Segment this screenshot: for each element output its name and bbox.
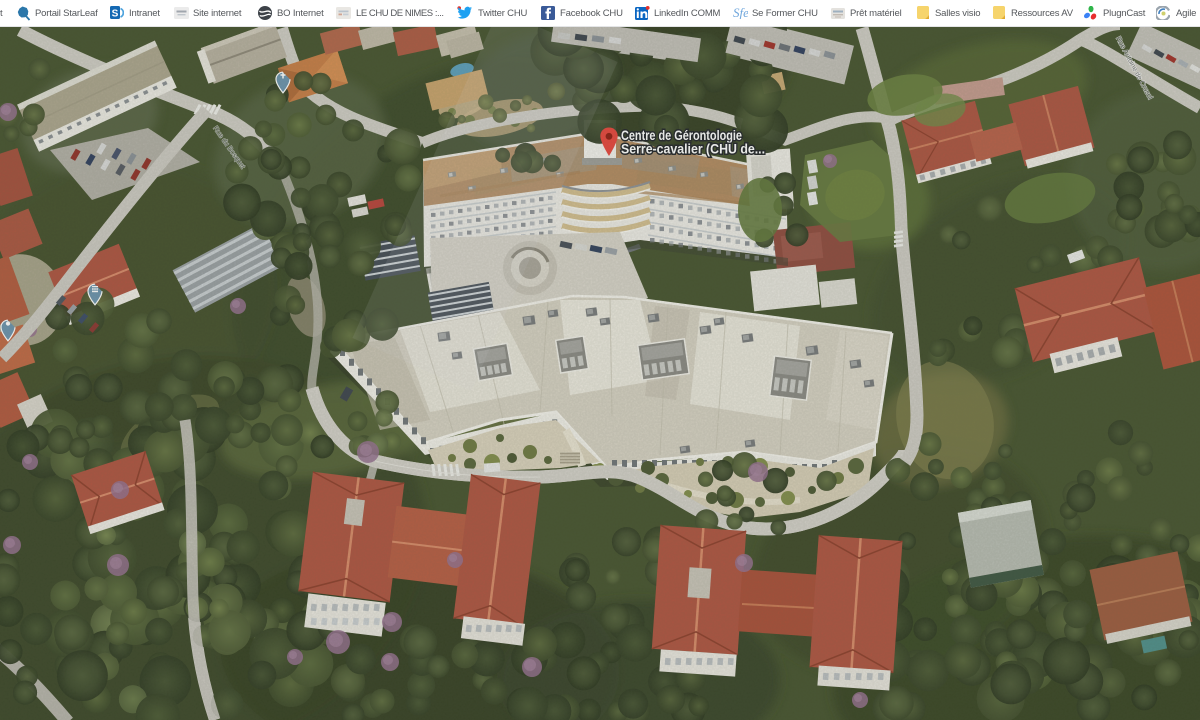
svg-text:S: S	[112, 9, 119, 20]
svg-text:Sfe: Sfe	[733, 6, 748, 19]
